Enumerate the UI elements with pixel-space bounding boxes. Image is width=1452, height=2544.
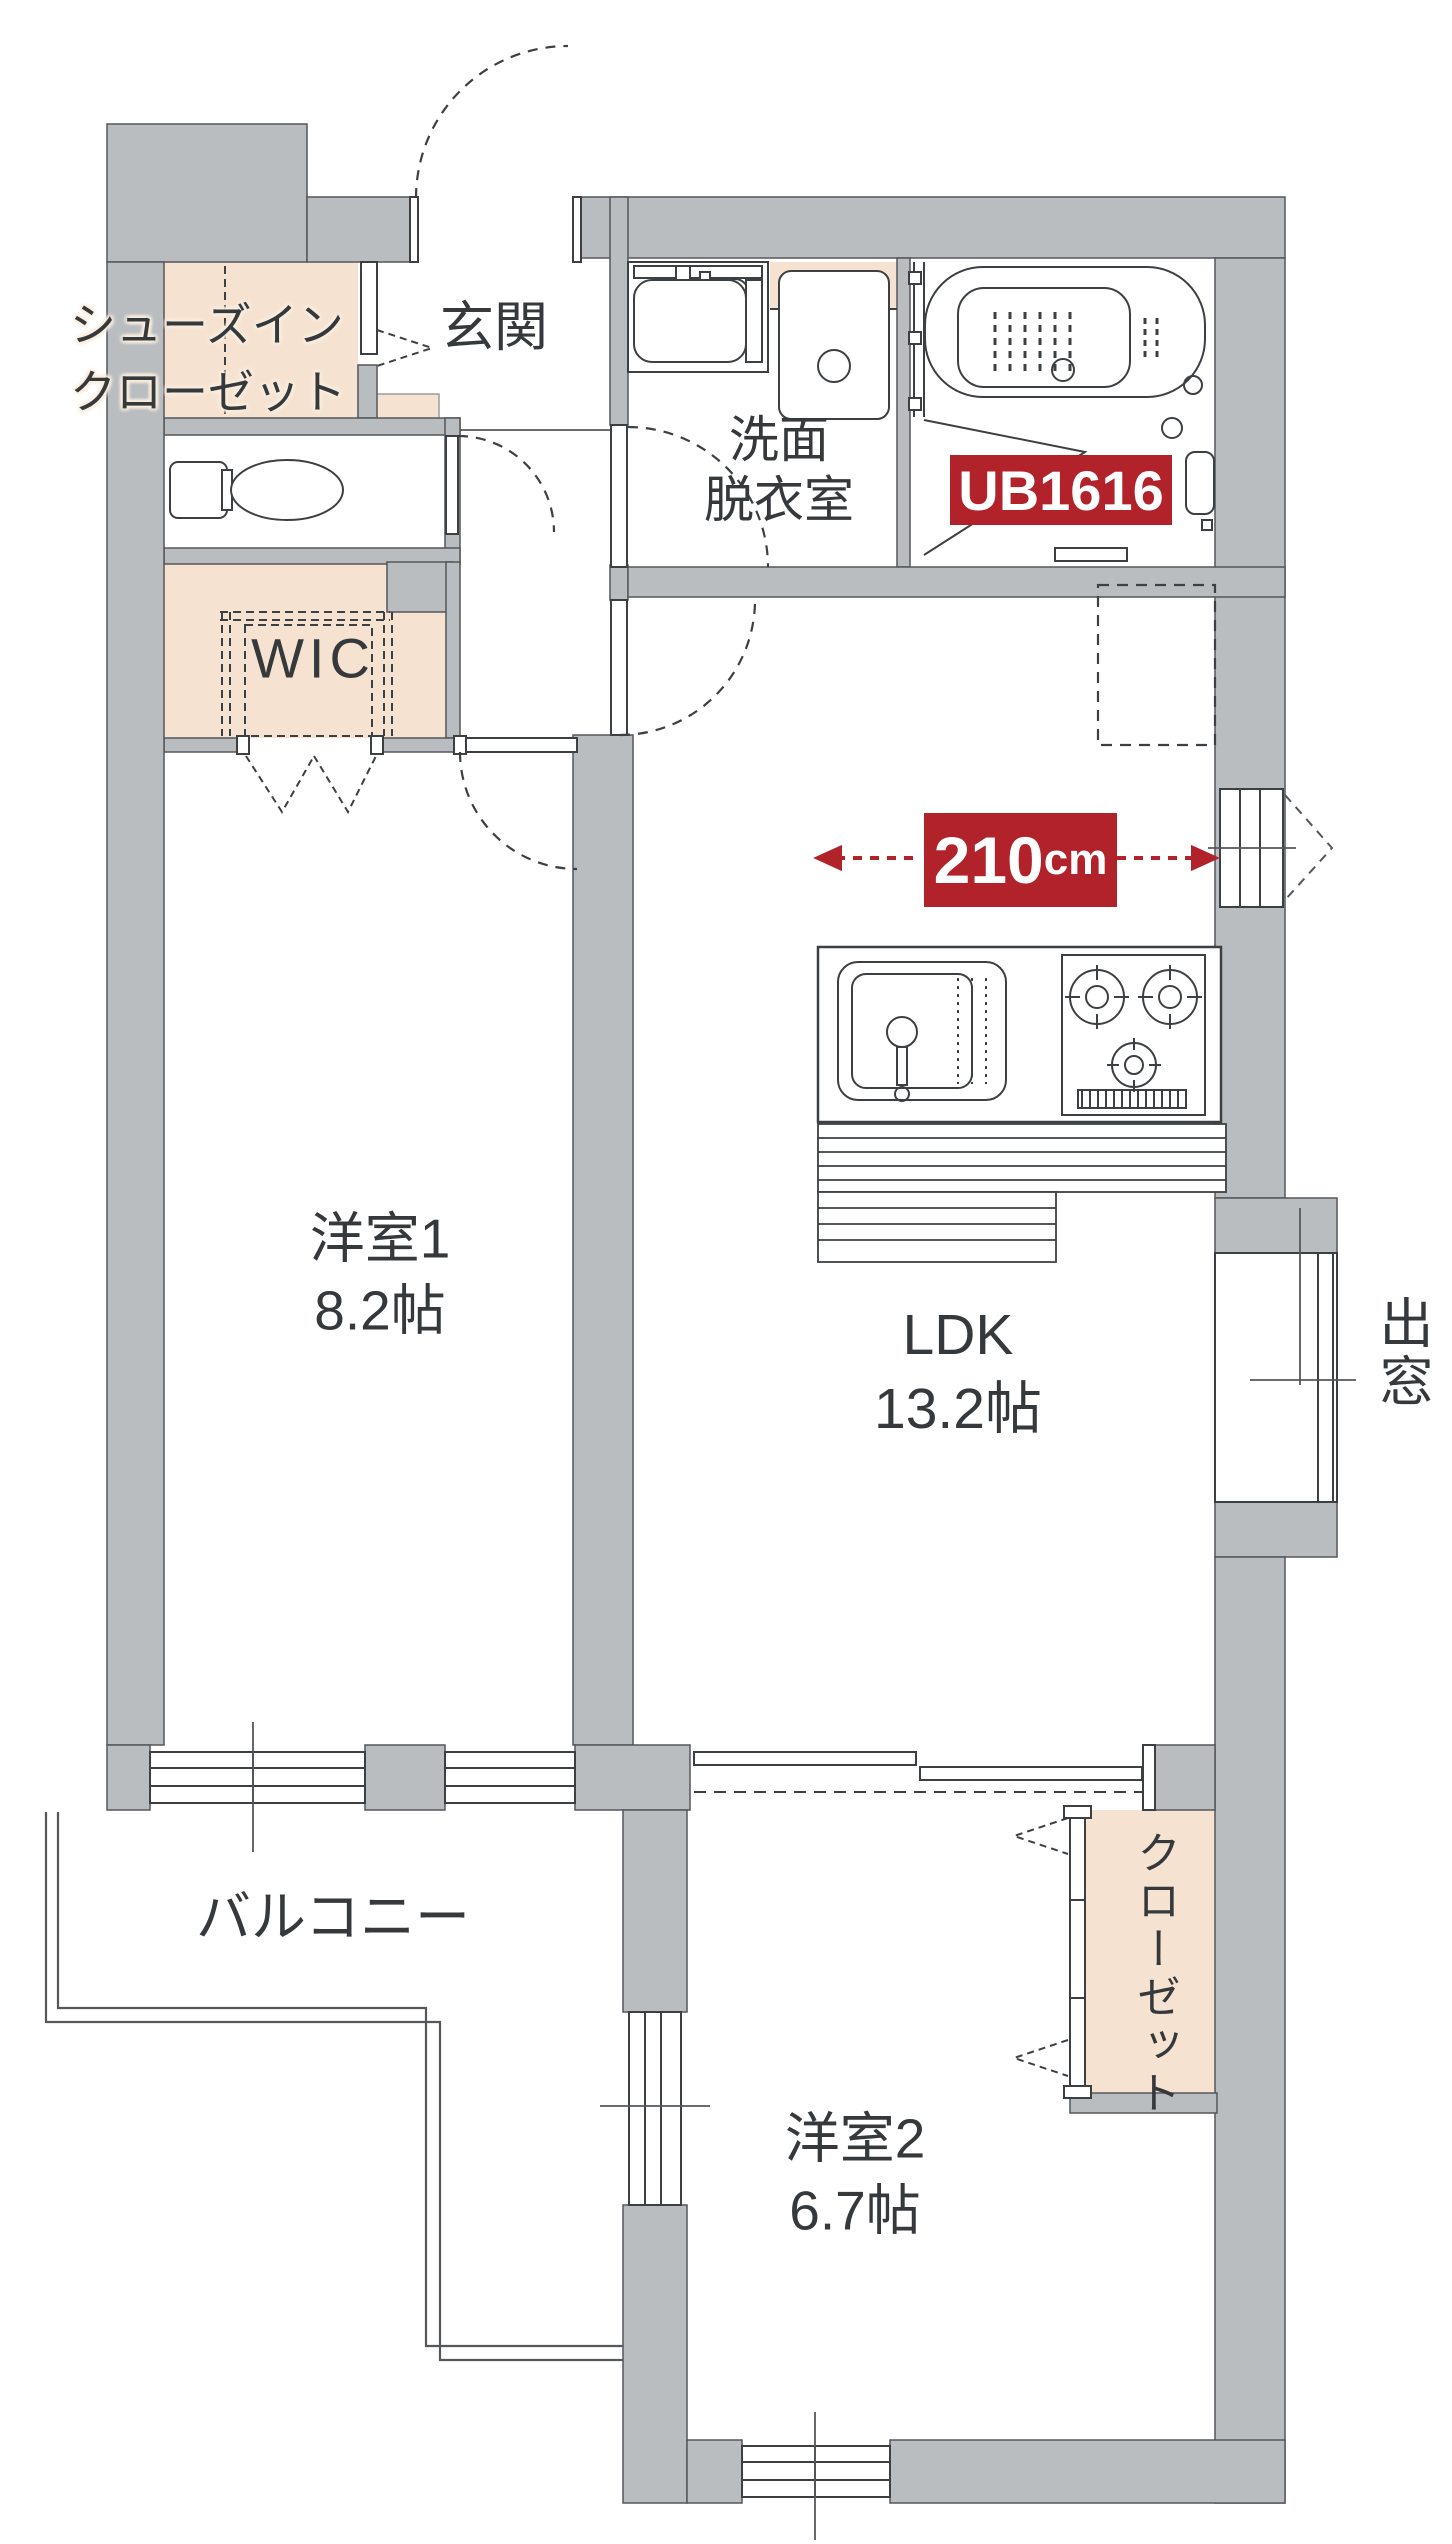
label-wic: WIC — [251, 626, 375, 691]
ldk-name: LDK — [874, 1298, 1042, 1372]
room2-size: 6.7帖 — [785, 2175, 926, 2247]
washroom-line1: 洗面 — [704, 410, 854, 470]
shoes-closet-line2: クローゼット — [70, 359, 346, 426]
kitchen-cabinet-hatch — [818, 1124, 1226, 1262]
label-ldk: LDK 13.2帖 — [874, 1298, 1042, 1446]
toilet-fixture — [170, 460, 343, 520]
label-closet: クローゼット — [1122, 1830, 1186, 2118]
washroom-line2: 脱衣室 — [704, 470, 854, 530]
vanity — [628, 262, 768, 372]
kitchen-dim-value: 210 — [934, 822, 1044, 898]
label-kitchen-dimension: 210cm — [924, 813, 1117, 907]
label-unit-bath: UB1616 — [950, 455, 1172, 525]
label-balcony: バルコニー — [196, 1872, 470, 1952]
bathtub — [925, 267, 1205, 397]
room1-name: 洋室1 — [310, 1204, 451, 1276]
room1-size: 8.2帖 — [310, 1275, 451, 1347]
room2-name: 洋室2 — [785, 2104, 926, 2176]
label-washroom: 洗面 脱衣室 — [704, 410, 854, 530]
sliding-door — [694, 1745, 1155, 1810]
refrigerator-space — [1098, 585, 1215, 745]
label-shoes-in-closet: シューズイン クローゼット — [70, 292, 346, 425]
label-bay-window: 出窓 — [1362, 1295, 1441, 1411]
windows — [150, 197, 1337, 2497]
label-western-room-2: 洋室2 6.7帖 — [785, 2104, 926, 2247]
shoes-closet-line1: シューズイン — [70, 292, 346, 359]
label-entrance: 玄関 — [440, 283, 548, 362]
kitchen-dim-unit: cm — [1044, 835, 1108, 885]
washing-machine — [770, 271, 897, 419]
label-western-room-1: 洋室1 8.2帖 — [310, 1204, 451, 1347]
ldk-size: 13.2帖 — [874, 1372, 1042, 1446]
floor-plan: シューズイン クローゼット 玄関 洗面 脱衣室 UB1616 WIC 洋室1 8… — [0, 0, 1452, 2544]
